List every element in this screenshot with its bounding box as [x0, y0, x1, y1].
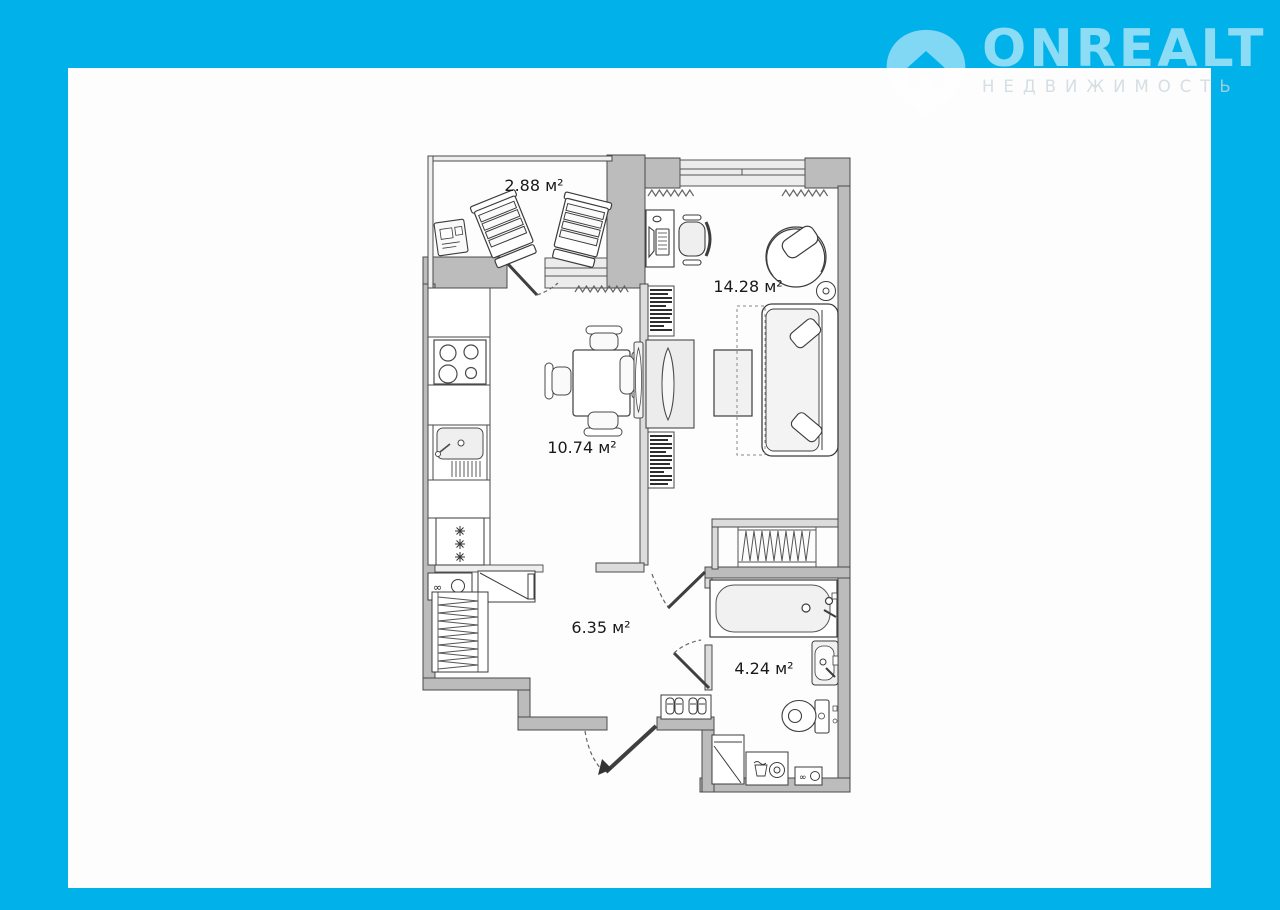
fridge	[436, 518, 484, 565]
clothes-rail-icon	[742, 531, 810, 561]
toilet	[782, 700, 837, 733]
wall	[518, 690, 530, 717]
area-label-kitchen: 10.74 м²	[547, 438, 616, 457]
kitchen-furniture	[428, 288, 639, 572]
bathtub	[710, 580, 837, 637]
washing-machine-bath	[712, 735, 744, 784]
drain-box: ∞	[795, 767, 822, 785]
svg-text:∞: ∞	[799, 773, 807, 783]
lounge-chair	[549, 192, 612, 269]
partition-wall	[712, 519, 838, 527]
entrance-door	[585, 726, 656, 775]
stove	[434, 340, 486, 384]
hallway-furniture: ∞	[428, 571, 711, 719]
kitchen-sink	[433, 425, 487, 480]
area-label-balcony: 2.88 м²	[504, 176, 563, 195]
closet	[738, 527, 816, 567]
balcony-table	[434, 219, 468, 256]
area-label-bathroom: 4.24 м²	[734, 659, 793, 678]
floor-lamp-icon	[817, 282, 836, 301]
wall	[607, 155, 645, 288]
wardrobe	[432, 592, 488, 672]
wall	[423, 678, 530, 690]
wall	[838, 186, 850, 790]
wall	[805, 158, 850, 188]
bathroom-sink	[812, 641, 838, 685]
area-label-living: 14.28 м²	[713, 277, 782, 296]
balcony-wall	[428, 156, 433, 288]
bathroom-fixtures: ∞	[710, 580, 838, 785]
wall	[645, 158, 680, 188]
mouse-icon	[653, 216, 661, 222]
floor-plan: ∞	[0, 0, 1280, 910]
partition-wall	[712, 527, 718, 569]
entrance-arrow-icon	[598, 759, 612, 775]
office-chair	[679, 215, 710, 265]
laundry-basket	[746, 752, 788, 785]
wall	[518, 717, 607, 730]
balcony-wall	[428, 156, 612, 161]
wall	[705, 567, 850, 578]
desk	[646, 210, 674, 267]
partition-wall	[596, 563, 644, 572]
area-label-hallway: 6.35 м²	[571, 618, 630, 637]
shoe-cabinet	[661, 695, 711, 719]
living-room-window	[680, 160, 805, 186]
coffee-table	[714, 350, 752, 416]
sofa	[762, 304, 838, 456]
bathroom-door	[652, 572, 709, 688]
wall	[423, 257, 507, 288]
